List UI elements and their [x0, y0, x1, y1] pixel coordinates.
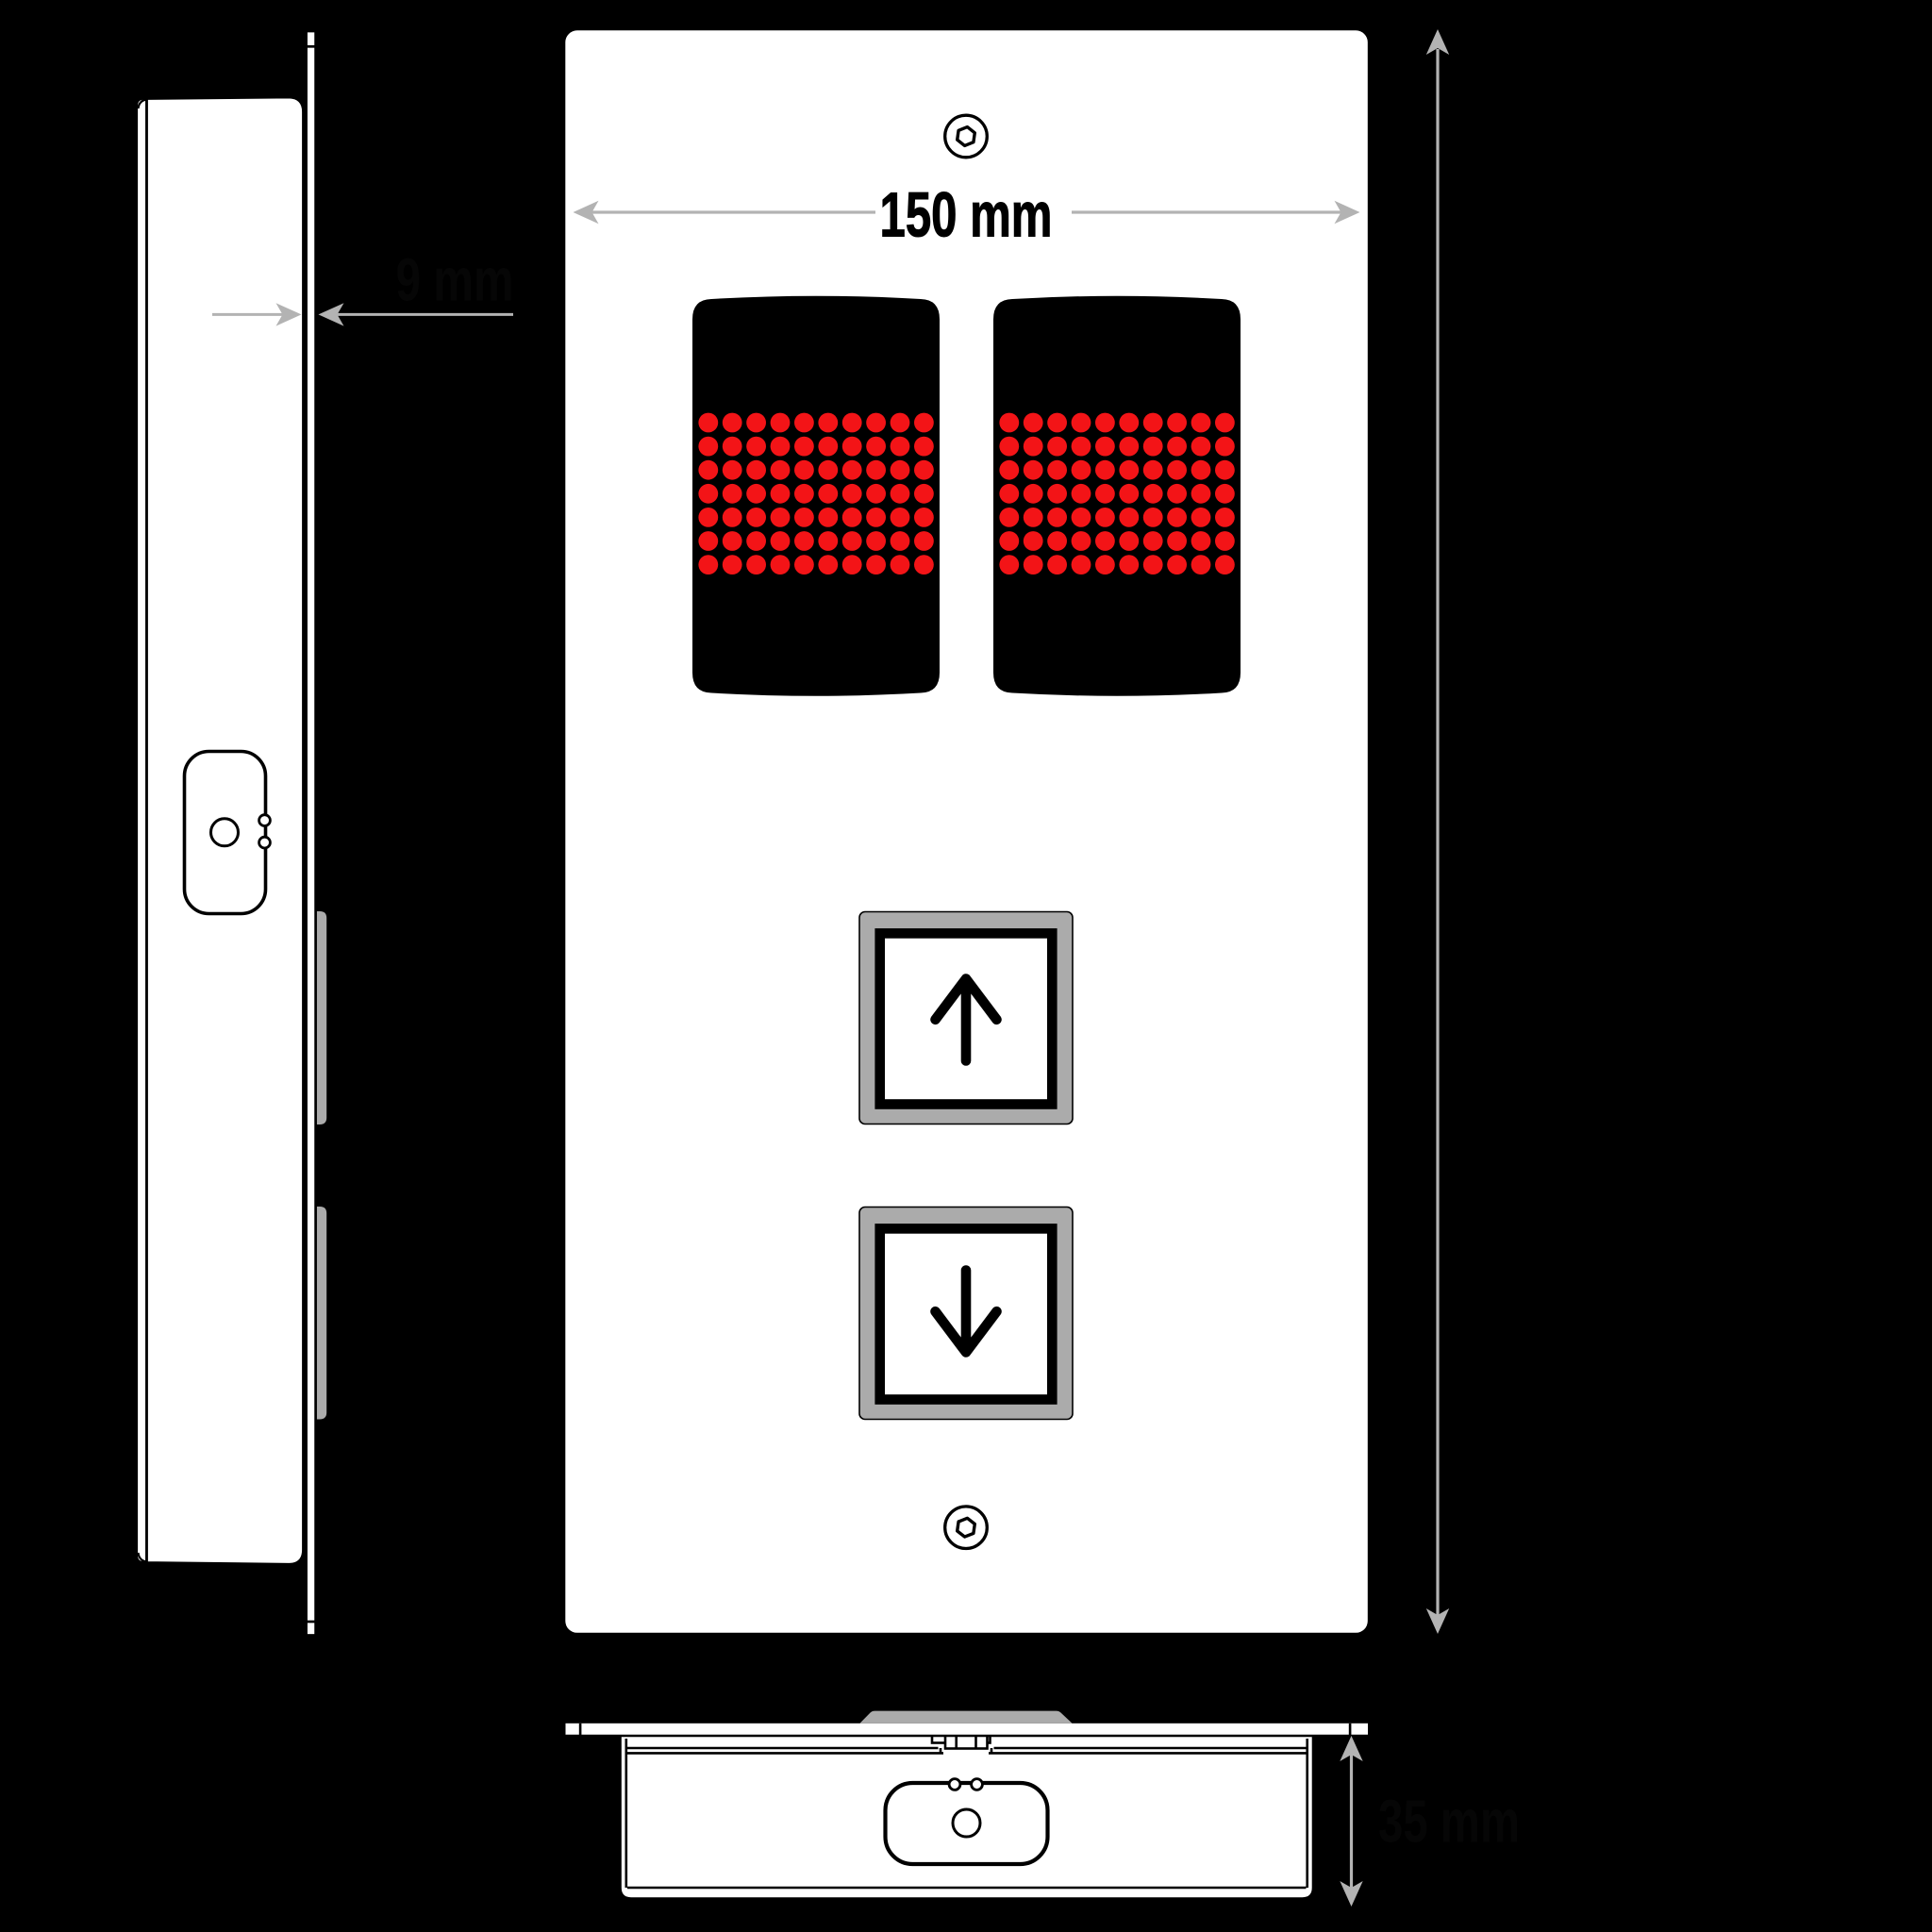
svg-text:35 mm: 35 mm — [1378, 1788, 1520, 1856]
svg-text:9 mm: 9 mm — [396, 246, 514, 314]
svg-text:150 mm: 150 mm — [880, 180, 1053, 251]
